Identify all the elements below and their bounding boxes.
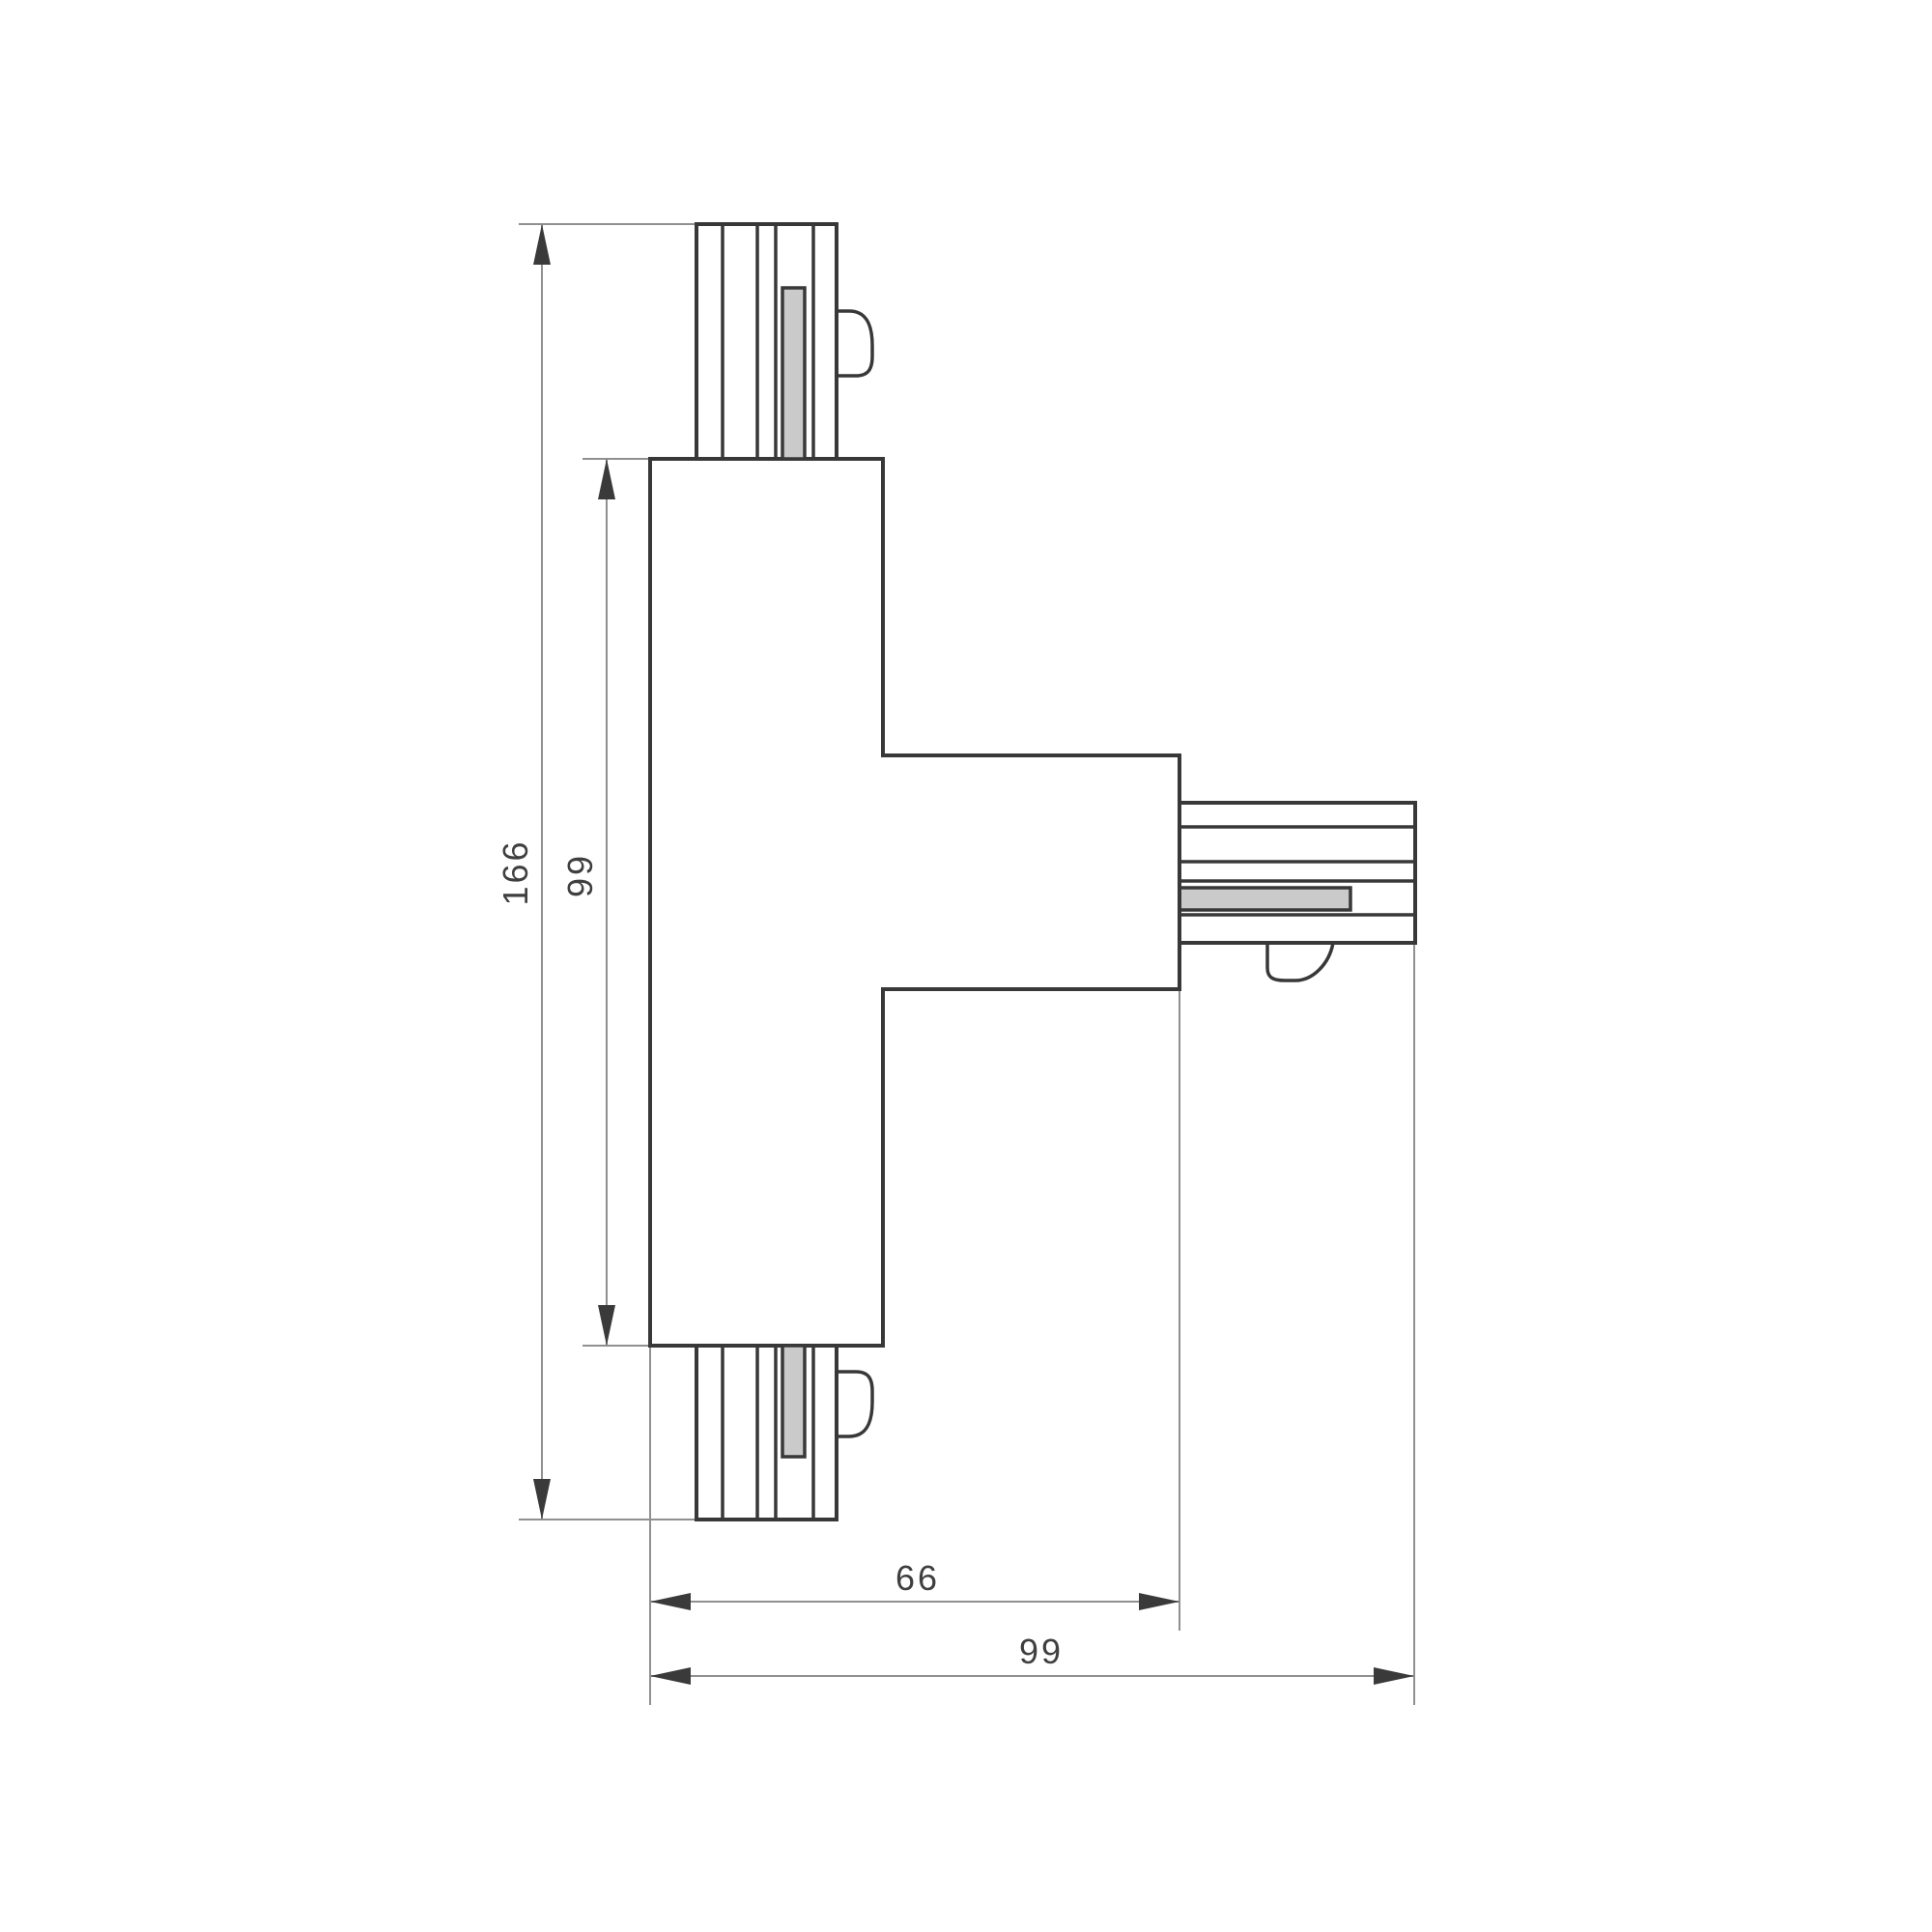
bottom-connector-housing [696,1346,837,1520]
dim-label-body-height: 99 [560,853,600,897]
top-connector-latch-tab [837,311,872,376]
arrow-left-icon [650,1593,691,1610]
top-connector-housing [696,224,837,459]
arrow-up-icon [533,224,551,265]
right-connector-latch-tab [1267,943,1333,980]
right-connector-contact-bar [1179,888,1350,910]
arrow-up-icon [598,459,615,499]
dim-label-total-width: 99 [1019,1632,1064,1671]
top-track-connector [696,224,872,459]
top-connector-contact-bar [782,288,805,459]
right-track-connector [1179,755,1415,989]
dim-label-arm-width: 66 [895,1558,940,1598]
connector-body-outline [650,459,1179,1346]
arrow-left-icon [650,1667,691,1685]
bottom-track-connector [696,1346,872,1520]
dim-label-total-height: 166 [496,838,535,905]
drawing-canvas: 166 99 66 99 [0,0,1932,1932]
right-connector-housing [1179,803,1415,943]
arrow-right-icon [1139,1593,1179,1610]
arrow-down-icon [533,1479,551,1520]
bottom-connector-latch-tab [837,1372,872,1436]
t-connector-technical-drawing: 166 99 66 99 [0,0,1932,1932]
bottom-connector-contact-bar [782,1346,805,1457]
arrow-right-icon [1374,1667,1414,1685]
arrow-down-icon [598,1305,615,1346]
